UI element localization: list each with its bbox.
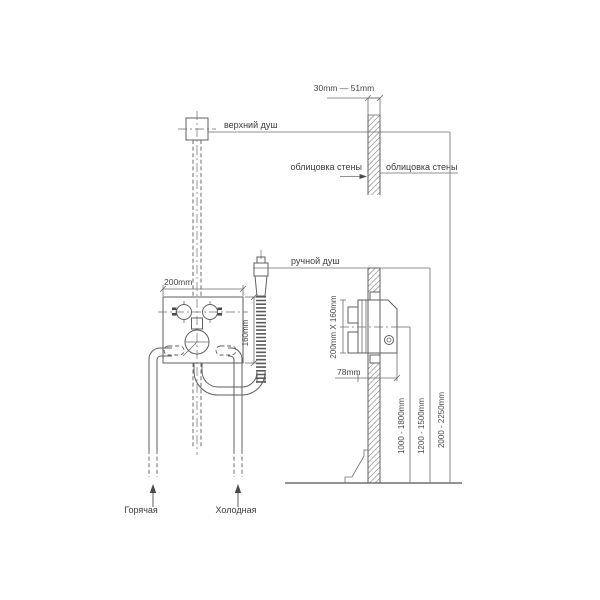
hot-supply: Горячая	[124, 484, 158, 515]
dim-tile-thickness: 30mm — 51mm	[314, 83, 383, 101]
cold-pipe	[228, 348, 242, 477]
arrow-up-icon	[150, 484, 156, 493]
hand-shower-height-label: 1200 - 1500mm	[417, 398, 426, 454]
port-mark-icon	[218, 308, 223, 311]
wall-cladding-left-label: облицовка стены	[291, 162, 362, 172]
dim-box-width: 200mm	[160, 277, 246, 296]
hand-shower-label: ручной душ	[291, 256, 340, 266]
port-mark-icon	[172, 313, 177, 316]
wall-cladding-right-label: облицовка стены	[386, 162, 457, 172]
tile-thickness-label: 30mm — 51mm	[314, 83, 374, 93]
arrow-right-icon	[360, 174, 368, 179]
mixer-box-front	[158, 297, 248, 363]
arrow-up-icon	[235, 484, 241, 493]
level-lines: верхний душ ручной душ	[208, 120, 450, 268]
wall-upper	[368, 98, 380, 195]
dim-box-height: 160mm	[241, 294, 258, 366]
wall-cladding-left: облицовка стены	[291, 162, 367, 179]
dim-box-face-label: 200mm X 160mm	[329, 295, 338, 358]
hand-shower	[254, 250, 268, 383]
height-dimensions: 1000 - 1800mm 1200 - 1500mm 2000 - 2250m…	[397, 132, 450, 483]
mixer-height-label: 1000 - 1800mm	[397, 398, 406, 454]
pipe-slot-right	[216, 346, 236, 355]
top-shower-height-label: 2000 - 2250mm	[437, 392, 446, 448]
hot-pipe	[149, 348, 172, 477]
front-view: 200mm 160mm	[124, 111, 268, 515]
port-mark-icon	[172, 308, 177, 311]
hot-supply-label: Горячая	[124, 505, 158, 515]
hose-loop	[194, 363, 265, 395]
cold-supply-label: Холодная	[216, 505, 257, 515]
top-shower-label: верхний душ	[224, 120, 278, 130]
wall-cladding-right: облицовка стены	[380, 162, 458, 173]
top-shower-head	[178, 111, 216, 146]
skirting-profile	[345, 450, 368, 483]
dim-box-height-label: 160mm	[241, 319, 250, 346]
port-mark-icon	[218, 313, 223, 316]
dim-box-width-label: 200mm	[164, 277, 192, 287]
section-view: 30mm — 51mm облицовка стены облицовка ст…	[285, 83, 462, 483]
dim-box-depth-label: 78mm	[337, 367, 361, 377]
screw-icon	[385, 336, 394, 345]
cold-supply: Холодная	[216, 484, 257, 515]
pipe-slot-left	[164, 346, 184, 355]
shower-installation-diagram: 200mm 160mm	[0, 0, 600, 600]
drawing-canvas: 200mm 160mm	[0, 0, 600, 600]
